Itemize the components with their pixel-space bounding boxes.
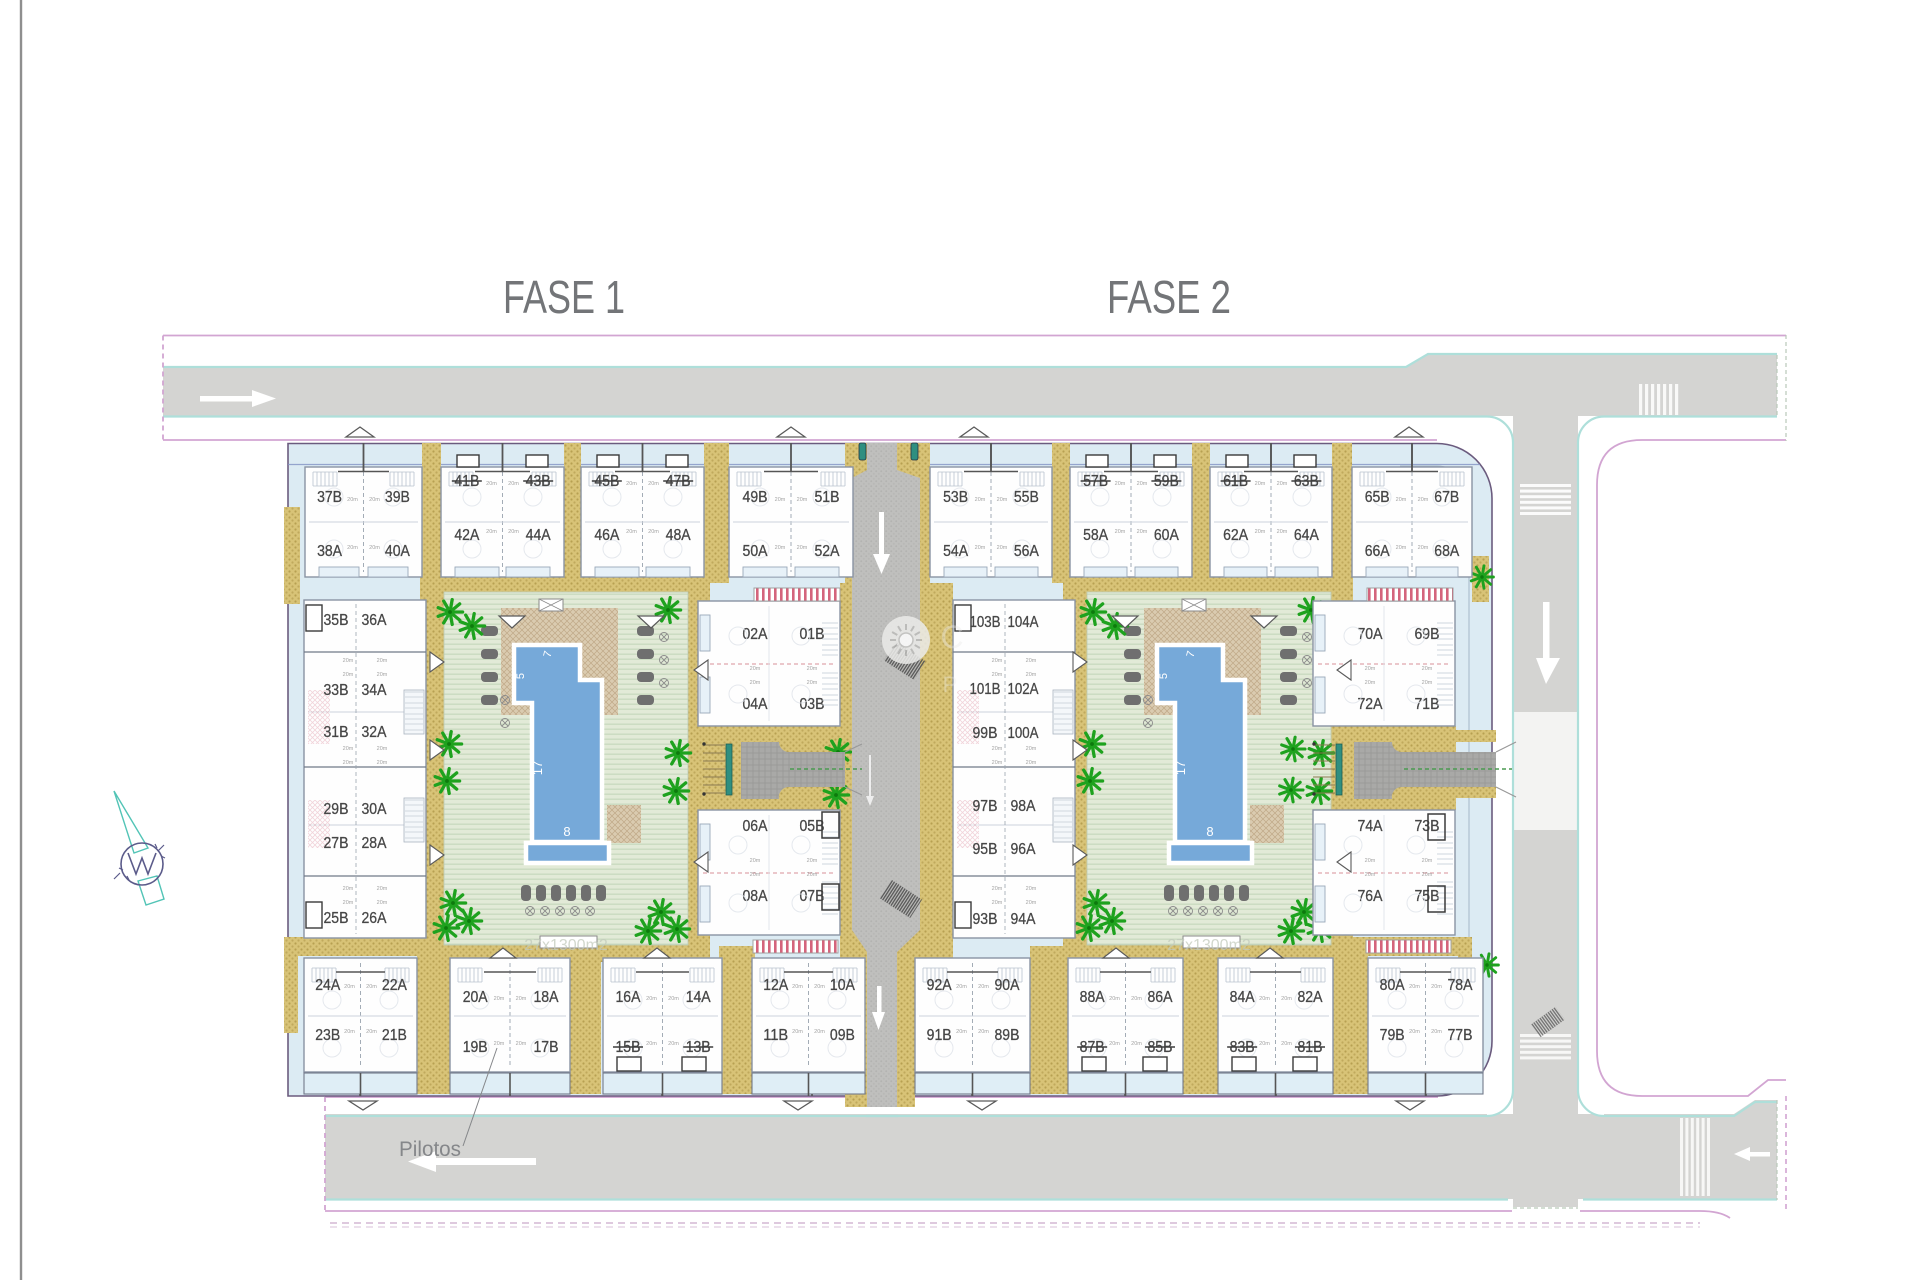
svg-text:20m: 20m xyxy=(1026,760,1037,766)
svg-text:60A: 60A xyxy=(1154,527,1180,544)
svg-text:20m: 20m xyxy=(369,497,380,503)
svg-text:18A: 18A xyxy=(534,989,560,1006)
svg-text:20m: 20m xyxy=(648,529,659,535)
svg-text:27B: 27B xyxy=(324,835,349,852)
svg-text:37B: 37B xyxy=(317,489,342,506)
svg-text:20m: 20m xyxy=(377,746,388,752)
svg-text:20m: 20m xyxy=(1109,996,1120,1002)
svg-text:20m: 20m xyxy=(486,529,497,535)
svg-text:20m: 20m xyxy=(486,481,497,487)
svg-text:20m: 20m xyxy=(1418,497,1429,503)
svg-text:20m: 20m xyxy=(807,858,818,864)
svg-text:20m: 20m xyxy=(343,760,354,766)
svg-text:FASE 2: FASE 2 xyxy=(1107,271,1231,323)
svg-text:20m: 20m xyxy=(1115,481,1126,487)
svg-text:20m: 20m xyxy=(997,545,1008,551)
svg-text:20m: 20m xyxy=(807,666,818,672)
svg-text:20m: 20m xyxy=(366,984,377,990)
svg-text:94A: 94A xyxy=(1011,911,1037,928)
svg-text:82A: 82A xyxy=(1298,989,1324,1006)
svg-text:35B: 35B xyxy=(324,612,349,629)
svg-text:20m: 20m xyxy=(1281,996,1292,1002)
svg-text:20m: 20m xyxy=(792,1029,803,1035)
svg-text:17: 17 xyxy=(530,761,545,775)
svg-text:20m: 20m xyxy=(344,1029,355,1035)
svg-text:102A: 102A xyxy=(1008,681,1040,698)
svg-text:71B: 71B xyxy=(1415,696,1440,713)
svg-text:12A: 12A xyxy=(763,977,789,994)
svg-text:55B: 55B xyxy=(1014,489,1039,506)
svg-text:20m: 20m xyxy=(775,497,786,503)
svg-text:20m: 20m xyxy=(1026,658,1037,664)
svg-text:20m: 20m xyxy=(516,1041,527,1047)
svg-text:20m: 20m xyxy=(377,672,388,678)
svg-text:56A: 56A xyxy=(1014,543,1040,560)
svg-text:69B: 69B xyxy=(1415,626,1440,643)
svg-text:27x1300m2: 27x1300m2 xyxy=(524,937,608,954)
svg-text:20m: 20m xyxy=(508,481,519,487)
svg-text:20m: 20m xyxy=(1026,886,1037,892)
svg-text:100A: 100A xyxy=(1008,725,1040,742)
svg-text:20m: 20m xyxy=(1131,1041,1142,1047)
svg-text:62A: 62A xyxy=(1223,527,1249,544)
svg-text:104A: 104A xyxy=(1008,614,1040,631)
svg-text:07B: 07B xyxy=(800,888,825,905)
svg-text:29B: 29B xyxy=(324,801,349,818)
svg-text:20m: 20m xyxy=(1281,1041,1292,1047)
svg-text:65B: 65B xyxy=(1365,489,1390,506)
svg-text:20m: 20m xyxy=(1365,872,1376,878)
svg-text:97B: 97B xyxy=(973,798,998,815)
svg-text:20m: 20m xyxy=(792,984,803,990)
svg-text:20m: 20m xyxy=(1115,529,1126,535)
svg-text:20m: 20m xyxy=(626,529,637,535)
svg-text:20m: 20m xyxy=(377,658,388,664)
svg-text:23B: 23B xyxy=(315,1027,340,1044)
svg-text:20m: 20m xyxy=(978,984,989,990)
svg-text:76A: 76A xyxy=(1358,888,1384,905)
svg-text:73B: 73B xyxy=(1415,818,1440,835)
svg-text:20m: 20m xyxy=(1277,481,1288,487)
svg-text:20m: 20m xyxy=(997,497,1008,503)
svg-text:20m: 20m xyxy=(807,872,818,878)
svg-text:80A: 80A xyxy=(1380,977,1406,994)
svg-text:20m: 20m xyxy=(343,886,354,892)
svg-text:19B: 19B xyxy=(463,1039,488,1056)
svg-text:49B: 49B xyxy=(743,489,768,506)
svg-text:77B: 77B xyxy=(1448,1027,1473,1044)
svg-text:03B: 03B xyxy=(800,696,825,713)
svg-text:20m: 20m xyxy=(1365,666,1376,672)
svg-text:34A: 34A xyxy=(362,682,388,699)
svg-text:28A: 28A xyxy=(362,835,388,852)
svg-text:16A: 16A xyxy=(615,989,641,1006)
svg-text:20m: 20m xyxy=(1409,1029,1420,1035)
svg-text:86A: 86A xyxy=(1148,989,1174,1006)
svg-text:20m: 20m xyxy=(377,886,388,892)
svg-text:20m: 20m xyxy=(956,1029,967,1035)
svg-text:90A: 90A xyxy=(995,977,1021,994)
svg-text:20m: 20m xyxy=(343,900,354,906)
svg-text:66A: 66A xyxy=(1365,543,1391,560)
svg-text:50A: 50A xyxy=(743,543,769,560)
svg-text:95B: 95B xyxy=(973,841,998,858)
svg-text:20m: 20m xyxy=(516,996,527,1002)
svg-text:20m: 20m xyxy=(1259,996,1270,1002)
svg-text:58A: 58A xyxy=(1083,527,1109,544)
svg-text:14A: 14A xyxy=(686,989,712,1006)
svg-text:20m: 20m xyxy=(1422,666,1433,672)
svg-text:20m: 20m xyxy=(1422,858,1433,864)
svg-text:20m: 20m xyxy=(369,545,380,551)
svg-text:20m: 20m xyxy=(1026,900,1037,906)
svg-text:20m: 20m xyxy=(750,872,761,878)
svg-text:20m: 20m xyxy=(494,996,505,1002)
svg-text:20m: 20m xyxy=(992,746,1003,752)
svg-text:20m: 20m xyxy=(1137,529,1148,535)
svg-text:79B: 79B xyxy=(1380,1027,1405,1044)
svg-text:20m: 20m xyxy=(975,497,986,503)
svg-text:36A: 36A xyxy=(362,612,388,629)
svg-text:17: 17 xyxy=(1173,761,1188,775)
svg-text:74A: 74A xyxy=(1358,818,1384,835)
svg-text:78A: 78A xyxy=(1448,977,1474,994)
svg-text:20m: 20m xyxy=(1422,872,1433,878)
svg-text:20m: 20m xyxy=(1131,996,1142,1002)
svg-text:20m: 20m xyxy=(750,680,761,686)
svg-text:20m: 20m xyxy=(646,996,657,1002)
svg-text:22A: 22A xyxy=(382,977,408,994)
svg-text:93B: 93B xyxy=(973,911,998,928)
svg-text:42A: 42A xyxy=(454,527,480,544)
svg-text:52A: 52A xyxy=(814,543,840,560)
svg-text:08A: 08A xyxy=(743,888,769,905)
svg-text:25B: 25B xyxy=(324,910,349,927)
svg-text:20m: 20m xyxy=(1422,680,1433,686)
svg-text:67B: 67B xyxy=(1434,489,1459,506)
svg-text:24A: 24A xyxy=(315,977,341,994)
svg-text:20m: 20m xyxy=(494,1041,505,1047)
svg-text:17B: 17B xyxy=(534,1039,559,1056)
svg-text:20m: 20m xyxy=(750,858,761,864)
svg-text:20m: 20m xyxy=(377,760,388,766)
svg-text:20m: 20m xyxy=(668,996,679,1002)
svg-text:89B: 89B xyxy=(995,1027,1020,1044)
svg-text:54A: 54A xyxy=(943,543,969,560)
svg-text:20m: 20m xyxy=(668,1041,679,1047)
svg-text:20m: 20m xyxy=(508,529,519,535)
svg-text:99B: 99B xyxy=(973,725,998,742)
svg-text:92A: 92A xyxy=(927,977,953,994)
svg-text:20m: 20m xyxy=(1365,680,1376,686)
svg-text:75B: 75B xyxy=(1415,888,1440,905)
svg-text:91B: 91B xyxy=(927,1027,952,1044)
svg-text:C: C xyxy=(940,619,963,655)
svg-text:20m: 20m xyxy=(1396,497,1407,503)
svg-text:20m: 20m xyxy=(978,1029,989,1035)
svg-text:48A: 48A xyxy=(666,527,692,544)
svg-text:96A: 96A xyxy=(1011,841,1037,858)
svg-text:20m: 20m xyxy=(807,680,818,686)
svg-text:20A: 20A xyxy=(463,989,489,1006)
svg-text:64A: 64A xyxy=(1294,527,1320,544)
svg-text:20m: 20m xyxy=(814,1029,825,1035)
svg-text:32A: 32A xyxy=(362,724,388,741)
svg-text:103B: 103B xyxy=(970,614,1001,631)
svg-text:11B: 11B xyxy=(763,1027,788,1044)
svg-text:20m: 20m xyxy=(1137,481,1148,487)
svg-text:40A: 40A xyxy=(385,543,411,560)
svg-text:20m: 20m xyxy=(1026,672,1037,678)
svg-text:20m: 20m xyxy=(1409,984,1420,990)
svg-text:46A: 46A xyxy=(594,527,620,544)
svg-text:20m: 20m xyxy=(1431,984,1442,990)
svg-text:39B: 39B xyxy=(385,489,410,506)
svg-text:20m: 20m xyxy=(975,545,986,551)
svg-text:P: P xyxy=(943,672,958,697)
svg-text:20m: 20m xyxy=(1255,481,1266,487)
svg-text:20m: 20m xyxy=(1365,858,1376,864)
svg-text:101B: 101B xyxy=(970,681,1001,698)
svg-text:20m: 20m xyxy=(366,1029,377,1035)
svg-text:20m: 20m xyxy=(377,900,388,906)
svg-text:88A: 88A xyxy=(1080,989,1106,1006)
svg-text:21B: 21B xyxy=(382,1027,407,1044)
svg-text:68A: 68A xyxy=(1434,543,1460,560)
svg-text:20m: 20m xyxy=(347,497,358,503)
svg-text:FASE 1: FASE 1 xyxy=(503,271,625,323)
svg-text:33B: 33B xyxy=(324,682,349,699)
svg-text:20m: 20m xyxy=(992,672,1003,678)
svg-text:20m: 20m xyxy=(646,1041,657,1047)
svg-text:20m: 20m xyxy=(1259,1041,1270,1047)
svg-text:06A: 06A xyxy=(743,818,769,835)
svg-text:20m: 20m xyxy=(344,984,355,990)
svg-text:20m: 20m xyxy=(992,658,1003,664)
svg-text:44A: 44A xyxy=(526,527,552,544)
svg-text:20m: 20m xyxy=(1396,545,1407,551)
svg-text:20m: 20m xyxy=(1277,529,1288,535)
svg-text:09B: 09B xyxy=(830,1027,855,1044)
svg-text:20m: 20m xyxy=(797,497,808,503)
svg-text:5: 5 xyxy=(1158,673,1170,679)
svg-text:01B: 01B xyxy=(800,626,825,643)
svg-text:20m: 20m xyxy=(992,760,1003,766)
svg-text:20m: 20m xyxy=(992,886,1003,892)
svg-text:26A: 26A xyxy=(362,910,388,927)
svg-text:10A: 10A xyxy=(830,977,856,994)
svg-text:8: 8 xyxy=(1206,824,1213,839)
svg-text:20m: 20m xyxy=(648,481,659,487)
svg-text:20m: 20m xyxy=(343,658,354,664)
svg-text:20m: 20m xyxy=(797,545,808,551)
svg-text:20m: 20m xyxy=(1418,545,1429,551)
svg-text:98A: 98A xyxy=(1011,798,1037,815)
svg-text:31B: 31B xyxy=(324,724,349,741)
svg-text:20m: 20m xyxy=(1431,1029,1442,1035)
svg-text:84A: 84A xyxy=(1230,989,1256,1006)
svg-text:05B: 05B xyxy=(800,818,825,835)
svg-text:20m: 20m xyxy=(347,545,358,551)
svg-text:38A: 38A xyxy=(317,543,343,560)
svg-text:5: 5 xyxy=(515,673,527,679)
svg-text:20m: 20m xyxy=(775,545,786,551)
svg-text:20m: 20m xyxy=(343,746,354,752)
svg-text:27x1300m2: 27x1300m2 xyxy=(1167,937,1251,954)
svg-text:20m: 20m xyxy=(1255,529,1266,535)
svg-text:20m: 20m xyxy=(1109,1041,1120,1047)
svg-text:20m: 20m xyxy=(956,984,967,990)
svg-text:53B: 53B xyxy=(943,489,968,506)
svg-text:20m: 20m xyxy=(626,481,637,487)
svg-text:20m: 20m xyxy=(814,984,825,990)
svg-text:20m: 20m xyxy=(992,900,1003,906)
svg-text:20m: 20m xyxy=(750,666,761,672)
svg-text:Pilotos: Pilotos xyxy=(399,1138,461,1161)
svg-text:51B: 51B xyxy=(814,489,839,506)
svg-text:20m: 20m xyxy=(1026,746,1037,752)
svg-text:8: 8 xyxy=(563,824,570,839)
svg-text:20m: 20m xyxy=(343,672,354,678)
svg-text:30A: 30A xyxy=(362,801,388,818)
